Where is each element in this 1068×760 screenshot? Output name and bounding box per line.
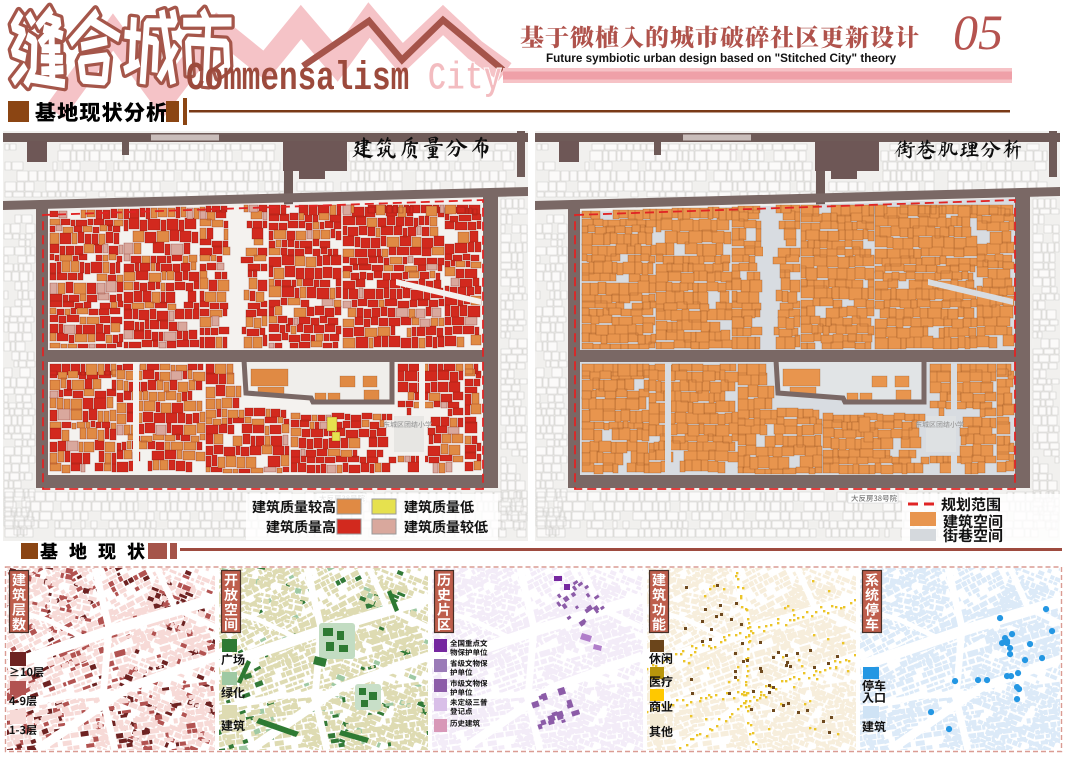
svg-text:Future symbiotic urban design: Future symbiotic urban design based on "…: [546, 52, 897, 65]
svg-text:Commensalism City: Commensalism City: [186, 56, 502, 102]
svg-text:05: 05: [953, 4, 1003, 60]
